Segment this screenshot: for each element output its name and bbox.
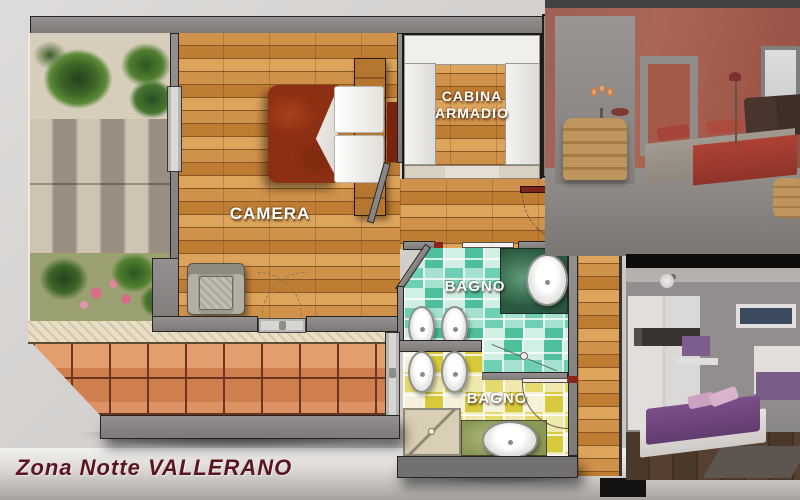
cabina-label-line1: CABINA <box>412 88 532 104</box>
terrace-floor <box>33 344 385 415</box>
garden-upper <box>28 33 175 119</box>
terrace-window-handle <box>389 368 396 378</box>
camera-label: CAMERA <box>200 204 340 224</box>
bedroom-south-wall-left <box>152 316 258 332</box>
cabina-label-line2: ARMADIO <box>412 105 532 121</box>
bed-rug <box>387 102 397 162</box>
bagni-outer-band <box>397 456 578 478</box>
purple-bedroom-photo <box>626 268 800 480</box>
terrace-door-handle <box>279 321 286 330</box>
bedroom-south-wall-right <box>306 316 400 332</box>
red-bedroom-photo <box>545 8 800 256</box>
bagno1-door-accent <box>434 242 443 248</box>
bagno2-toilet <box>441 351 468 393</box>
bagni-shared-wall <box>397 340 482 352</box>
corner-shadow-step <box>600 478 646 497</box>
bedroom-window <box>167 86 182 172</box>
bagno2-bidet <box>408 351 435 393</box>
photo1-haze <box>545 8 800 256</box>
caption-text: Zona Notte VALLERANO <box>16 455 416 481</box>
bagno1-shower-head <box>520 352 528 360</box>
bagno1-sink <box>526 254 568 306</box>
armchair-seat <box>199 276 233 310</box>
bagni-right-wall <box>568 248 578 456</box>
bed-pillow-top <box>334 86 384 133</box>
bagno2-door-lintel <box>568 376 578 383</box>
bagno2-sink <box>482 421 538 459</box>
floorplan-presentation: Zona Notte VALLERANO CAMERA CABINA ARMAD… <box>0 0 800 500</box>
top-wall <box>30 16 546 34</box>
terrace-outer-band <box>100 415 400 439</box>
bed-pillow-bottom <box>334 135 384 183</box>
photo2-haze <box>626 268 800 480</box>
stone-path <box>28 119 175 253</box>
bagno1-label: BAGNO <box>430 278 520 295</box>
bagno2-shower-drain <box>428 428 435 435</box>
